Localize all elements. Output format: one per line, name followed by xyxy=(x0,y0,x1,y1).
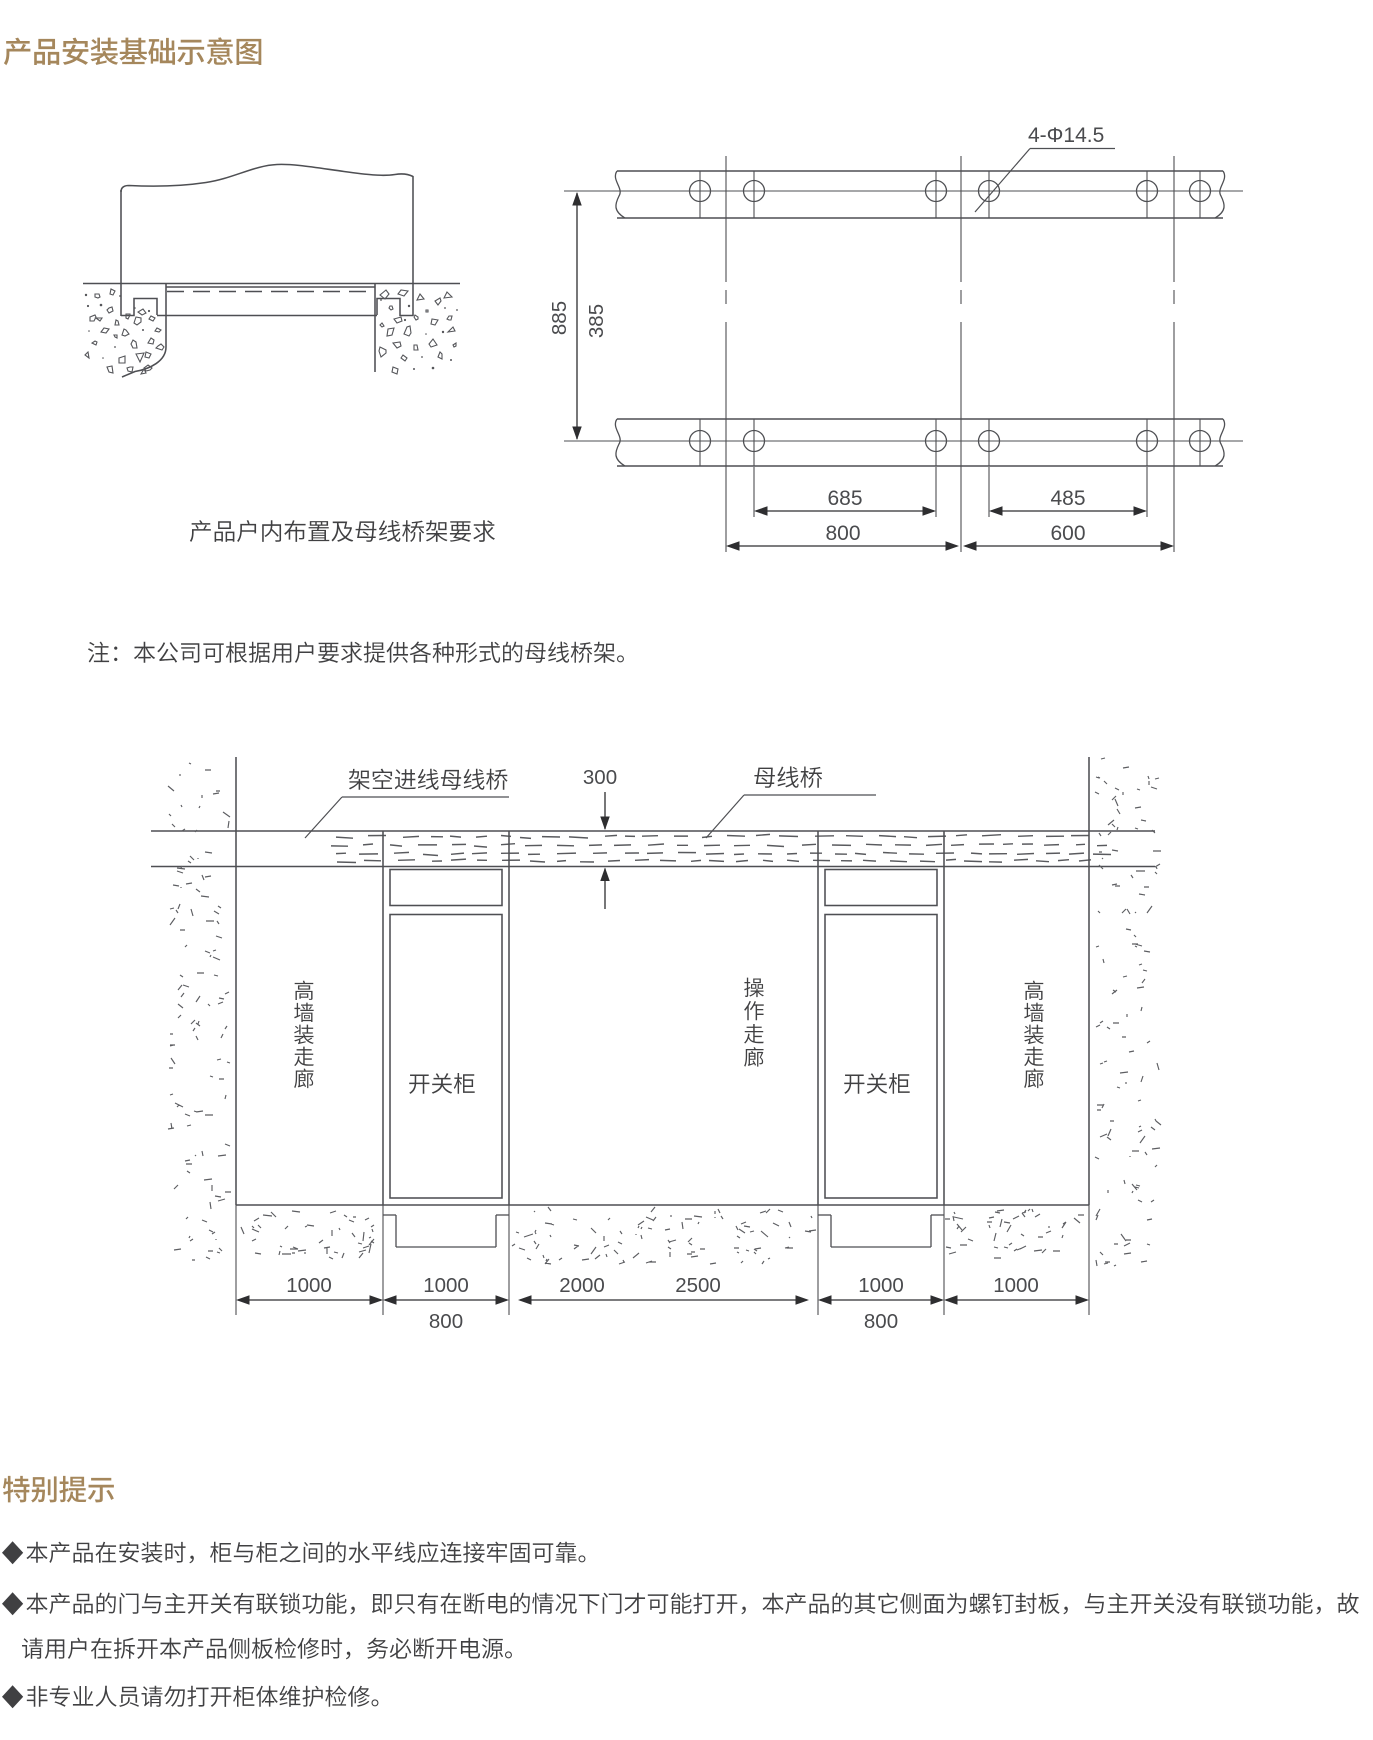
svg-text:385: 385 xyxy=(585,304,608,338)
svg-text:1000: 1000 xyxy=(858,1274,904,1297)
svg-text:2500: 2500 xyxy=(675,1274,721,1297)
svg-text:2000: 2000 xyxy=(559,1274,605,1297)
svg-text:885: 885 xyxy=(548,301,571,335)
svg-text:1000: 1000 xyxy=(993,1274,1039,1297)
svg-text:685: 685 xyxy=(827,487,862,510)
svg-text:1000: 1000 xyxy=(423,1274,469,1297)
svg-text:800: 800 xyxy=(429,1310,463,1333)
svg-text:4-Φ14.5: 4-Φ14.5 xyxy=(1028,124,1104,147)
svg-text:800: 800 xyxy=(864,1310,898,1333)
svg-text:1000: 1000 xyxy=(286,1274,332,1297)
svg-text:600: 600 xyxy=(1050,522,1085,545)
svg-text:485: 485 xyxy=(1050,487,1085,510)
svg-text:300: 300 xyxy=(583,766,617,789)
svg-text:800: 800 xyxy=(825,522,860,545)
